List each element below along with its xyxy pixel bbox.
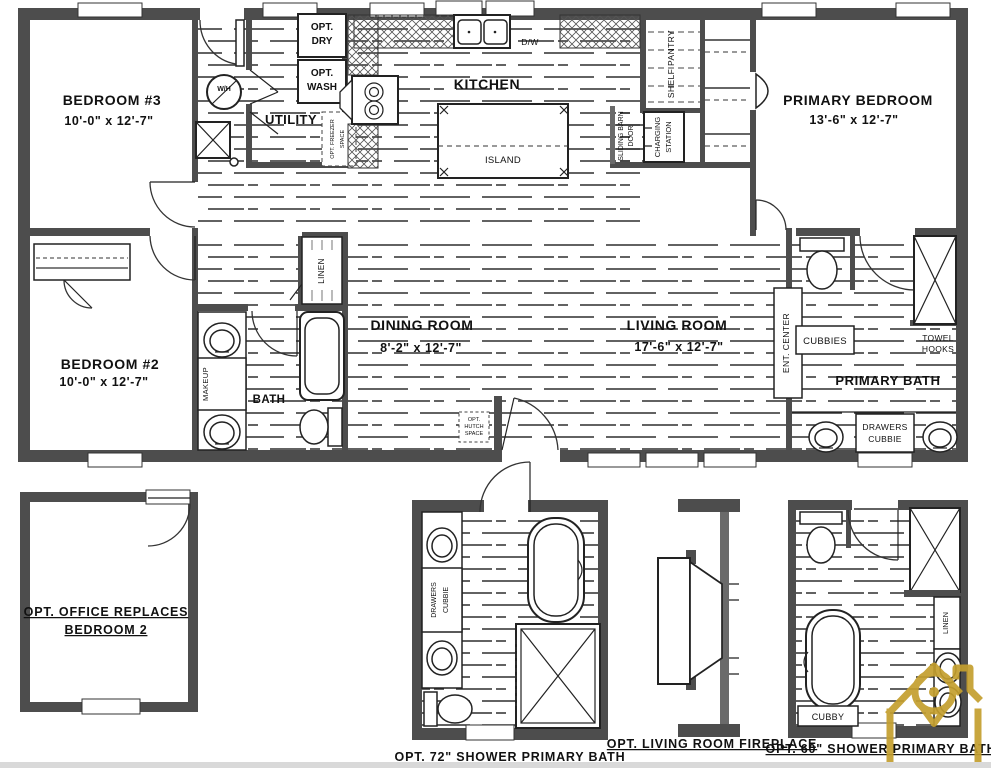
bedroom2-label: BEDROOM #2 (61, 356, 160, 372)
sliding-barn-door-label2: DOOR (628, 126, 635, 147)
opt-hutch-label1: OPT. (468, 417, 481, 423)
linen-closet: LINEN (302, 237, 342, 304)
cubbies-label: CUBBIES (803, 336, 847, 347)
drawers-cubbie-label2: CUBBIE (868, 434, 901, 444)
d60-linen-label: LINEN (941, 612, 950, 634)
floor-plan-canvas: OPT. DRY OPT. WASH W/H OPT. FREEZER SPAC… (0, 0, 991, 768)
opt-hutch-label2: HUTCH (464, 424, 483, 430)
detail-72-shower: DRAWERS CUBBIE OPT. 72" SHOWER PRIMARY B… (395, 462, 626, 764)
bedroom2-closet (34, 244, 130, 280)
primary-shower-icon (914, 236, 956, 324)
detail-fireplace: OPT. LIVING ROOM FIREPLACE (607, 499, 817, 751)
linen-label: LINEN (317, 258, 326, 284)
primary-bedroom-dims: 13'-6" x 12'-7" (809, 113, 898, 127)
charging-station-label2: STATION (664, 121, 673, 152)
primary-closet (705, 40, 750, 146)
d60-linen: LINEN (934, 597, 960, 649)
d72-tub-icon (528, 518, 584, 622)
drawers-cubbie: DRAWERS CUBBIE (856, 414, 914, 452)
primary-bath-label: PRIMARY BATH (835, 373, 940, 388)
opt-hutch-box: OPT. HUTCH SPACE (459, 412, 489, 442)
pantry: SHELF PANTRY (648, 30, 700, 102)
kitchen-island: ISLAND (438, 104, 568, 178)
d60-cubby: CUBBY (798, 706, 858, 726)
opt-60-shower-caption: OPT. 60" SHOWER PRIMARY BATH (766, 742, 991, 756)
dining-room-dims: 8'-2" x 12'-7" (380, 341, 462, 355)
d72-drawers-label: DRAWERS (431, 582, 438, 618)
bedroom2-dims: 10'-0" x 12'-7" (59, 375, 148, 389)
d72-drawers-cubbie: DRAWERS CUBBIE (422, 568, 462, 632)
ent-center-label: ENT. CENTER (781, 313, 791, 373)
opt-wash-label: OPT. (311, 68, 333, 79)
island-label: ISLAND (485, 155, 521, 166)
toilet-icon (300, 408, 342, 446)
charging-station-label: CHARGING (653, 117, 662, 158)
bath-label: BATH (253, 394, 286, 406)
range-icon (340, 76, 398, 124)
opt-office-caption2: BEDROOM 2 (65, 623, 148, 637)
d60-shower-icon (910, 508, 960, 592)
opt-dry-label: OPT. (311, 22, 333, 33)
makeup-label: MAKEUP (201, 367, 210, 401)
living-room-label: LIVING ROOM (627, 317, 728, 333)
bedroom3-dims: 10'-0" x 12'-7" (64, 114, 153, 128)
living-room-dims: 17'-6" x 12'-7" (634, 340, 723, 354)
sliding-barn-door-label: SLIDING BARN (618, 111, 625, 160)
towel-hooks-label2: HOOKS (922, 344, 954, 354)
d72-shower-icon (516, 624, 600, 728)
kitchen-label: KITCHEN (454, 76, 520, 92)
opt-freezer-label: OPT. FREEZER (330, 119, 336, 158)
opt-dry-label2: DRY (312, 36, 333, 47)
kitchen-sink-icon (454, 15, 510, 48)
fireplace-box-icon (658, 558, 690, 684)
bottom-border (0, 762, 991, 768)
charging-station: CHARGING STATION (644, 112, 684, 162)
drawers-cubbie-label: DRAWERS (862, 422, 907, 432)
floor-plan-page: OPT. DRY OPT. WASH W/H OPT. FREEZER SPAC… (0, 0, 991, 768)
dishwasher-label: D/W (521, 37, 538, 47)
d72-drawers-label2: CUBBIE (443, 587, 450, 613)
opt-wash-label2: WASH (307, 82, 337, 93)
cubbies: CUBBIES (796, 326, 854, 354)
utility-label: UTILITY (265, 112, 317, 127)
cubby-label: CUBBY (812, 712, 845, 722)
bathtub-icon (300, 312, 344, 400)
primary-bedroom-label: PRIMARY BEDROOM (783, 92, 933, 108)
opt-hutch-label3: SPACE (465, 431, 484, 437)
towel-hooks-label: TOWEL (922, 333, 954, 343)
water-heater-label: W/H (217, 86, 231, 93)
d72-toilet-icon (424, 692, 472, 726)
shelf-pantry-label: SHELF PANTRY (666, 30, 676, 98)
dining-room-label: DINING ROOM (370, 317, 473, 333)
detail-opt-office: OPT. OFFICE REPLACES BEDROOM 2 (20, 490, 198, 714)
opt-office-caption: OPT. OFFICE REPLACES (24, 605, 189, 619)
detail-60-shower: LINEN CUBBY OPT. 60" SHOWER PRIMARY BATH (766, 500, 991, 756)
opt-freezer-label2: SPACE (340, 130, 346, 149)
bedroom3-label: BEDROOM #3 (63, 92, 162, 108)
opt-72-shower-caption: OPT. 72" SHOWER PRIMARY BATH (395, 750, 626, 764)
